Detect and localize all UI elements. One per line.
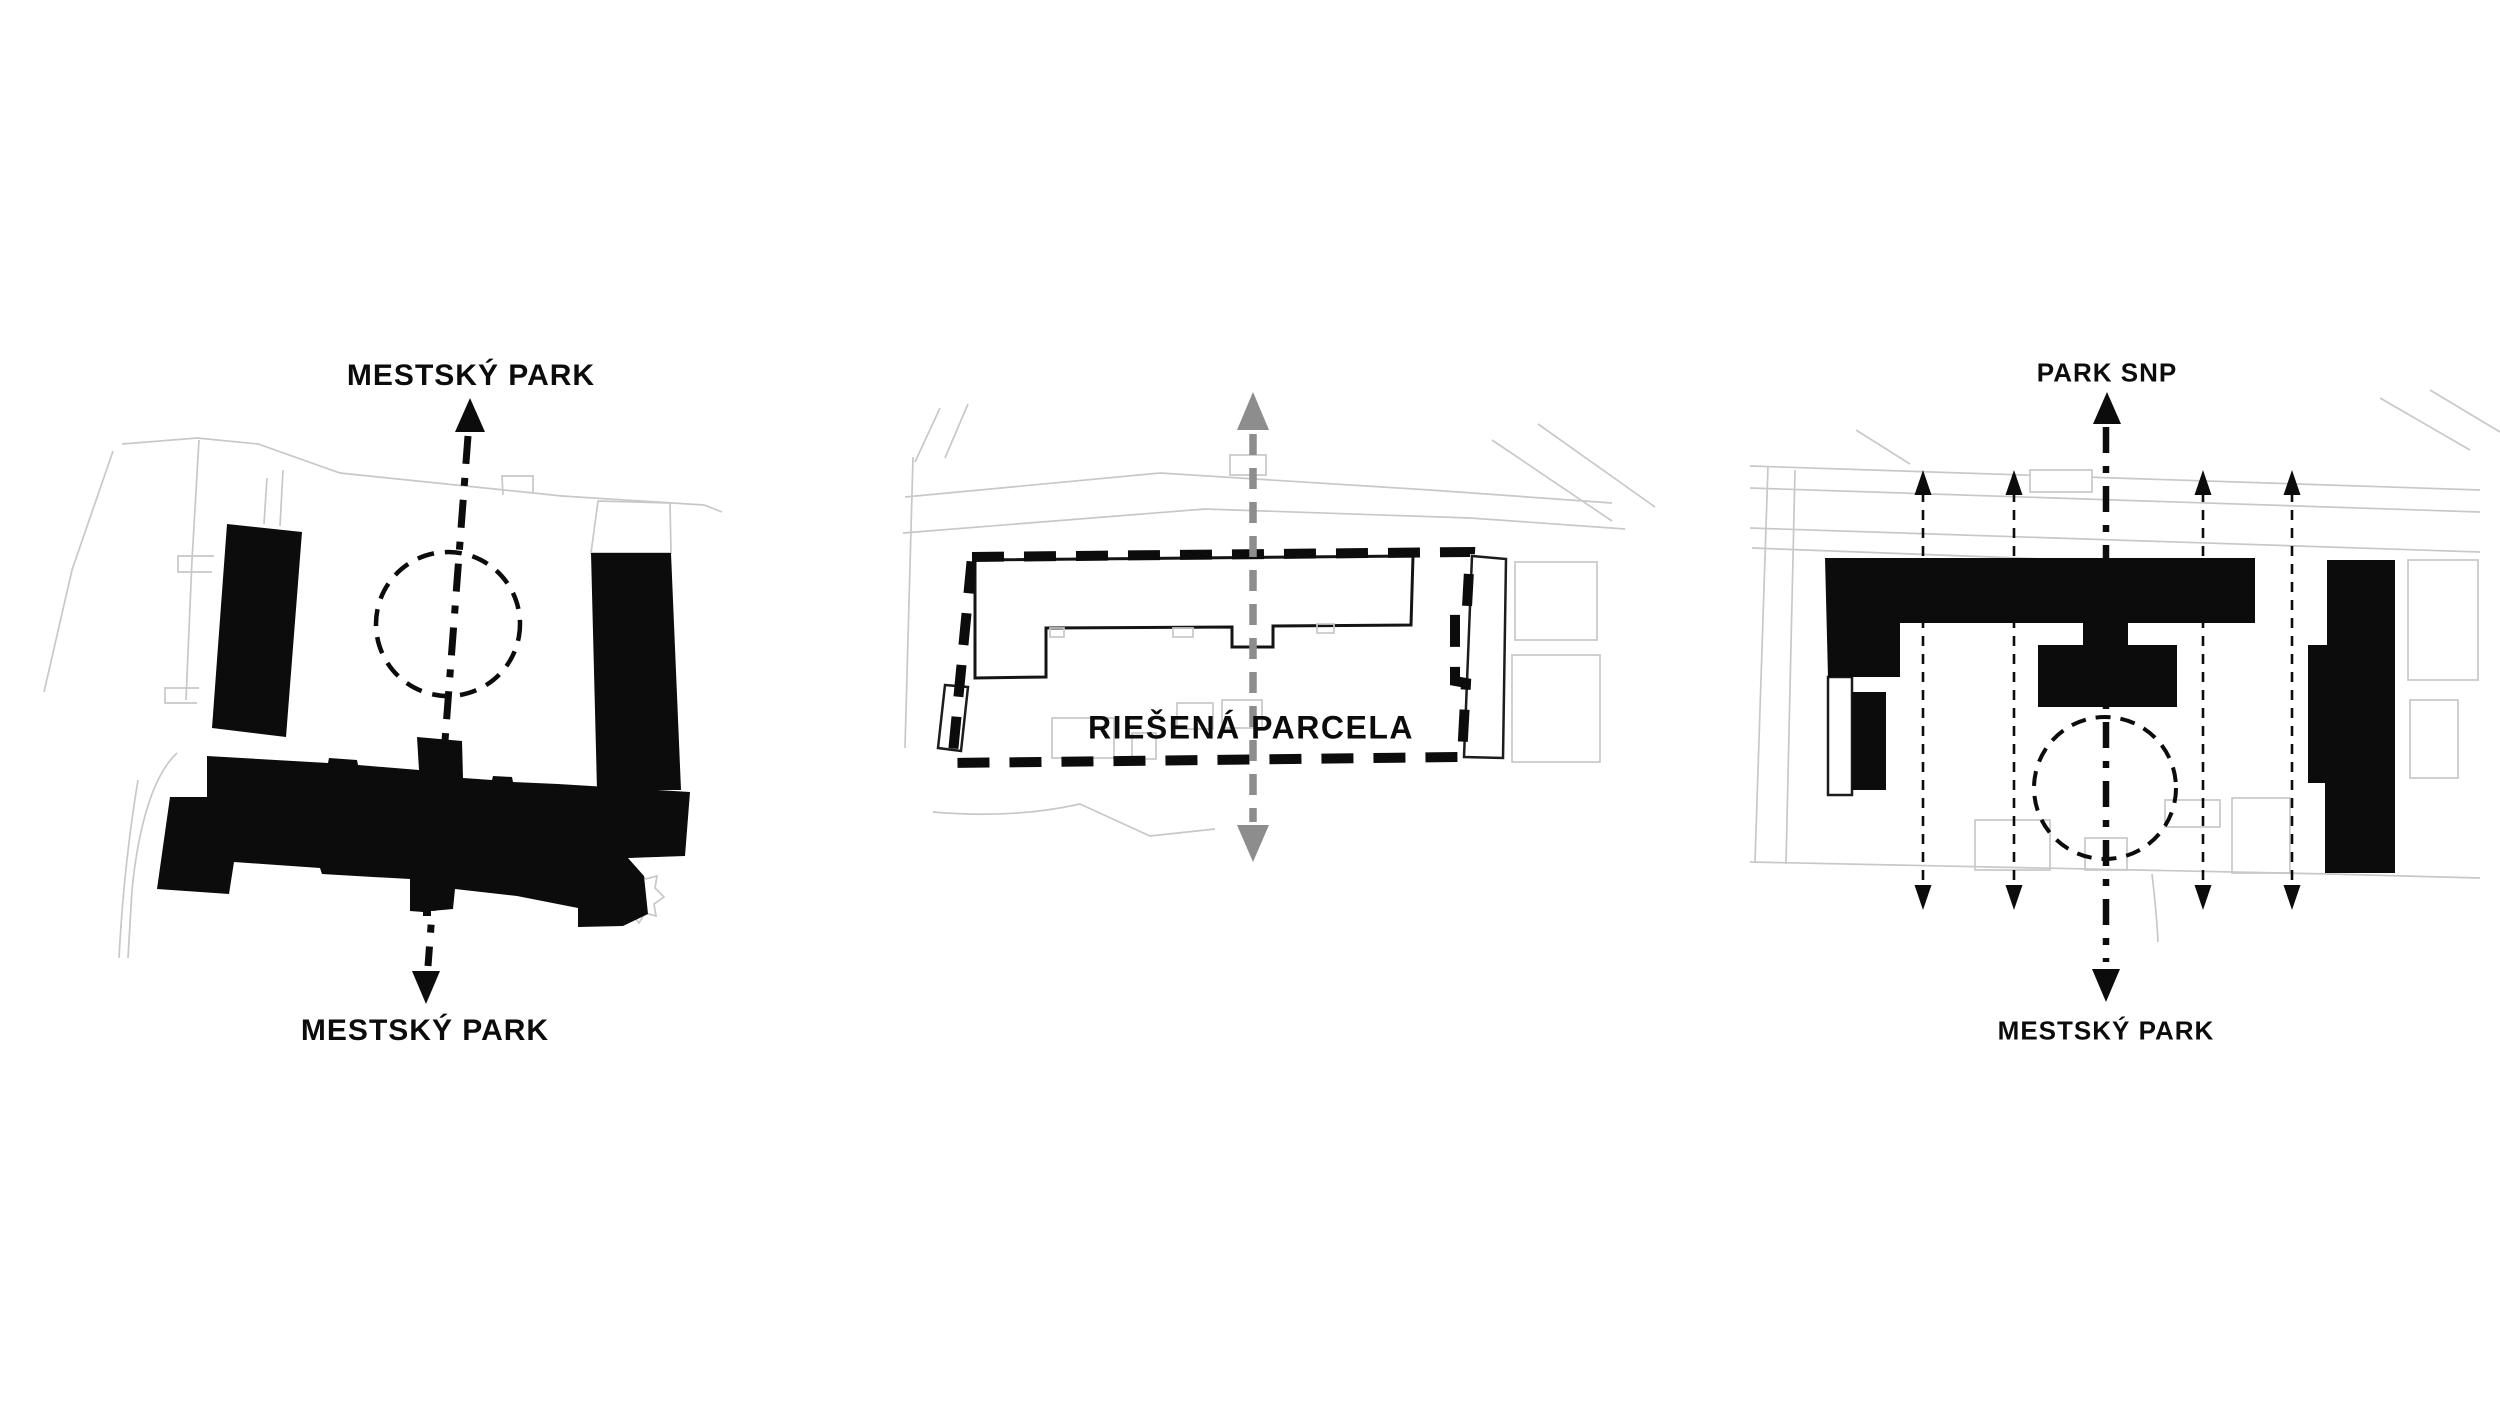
gray-down-arrow-icon [1237, 825, 1269, 862]
site-diagrams-canvas [0, 0, 2500, 1406]
building-mass-east-tall [2308, 560, 2395, 873]
diagram-sheet: MESTSKÝ PARK MESTSKÝ PARK RIEŠENÁ PARCEL… [0, 0, 2500, 1406]
up-arrow-icon [2093, 392, 2121, 424]
permeability-arrow-4 [2284, 470, 2301, 910]
down-arrow-icon [412, 971, 440, 1004]
permeability-arrow-1 [1915, 470, 1932, 910]
parcel-label: RIEŠENÁ PARCELA [1088, 710, 1414, 747]
gray-up-arrow-icon [1237, 392, 1269, 430]
left-label-bottom: MESTSKÝ PARK [301, 1014, 549, 1048]
building-mass-east [591, 553, 681, 790]
building-mass-west [212, 524, 302, 737]
permeability-arrow-3 [2195, 470, 2212, 910]
left-neighbor-building-outline [591, 501, 671, 553]
left-building-masses [157, 524, 690, 927]
infill-building-outline [1828, 677, 1852, 795]
parcel-building-footprint [975, 556, 1413, 678]
connections-diagram [1750, 390, 2500, 1002]
up-arrow-icon [455, 398, 485, 432]
right-label-top: PARK SNP [2037, 358, 2177, 389]
left-label-top: MESTSKÝ PARK [347, 359, 595, 393]
right-label-bottom: MESTSKÝ PARK [1998, 1016, 2215, 1047]
down-arrow-icon [2092, 969, 2120, 1002]
left-axis-diagram [44, 398, 722, 1004]
parcel-diagram [903, 392, 1655, 862]
building-mass-west-small [1852, 692, 1886, 790]
